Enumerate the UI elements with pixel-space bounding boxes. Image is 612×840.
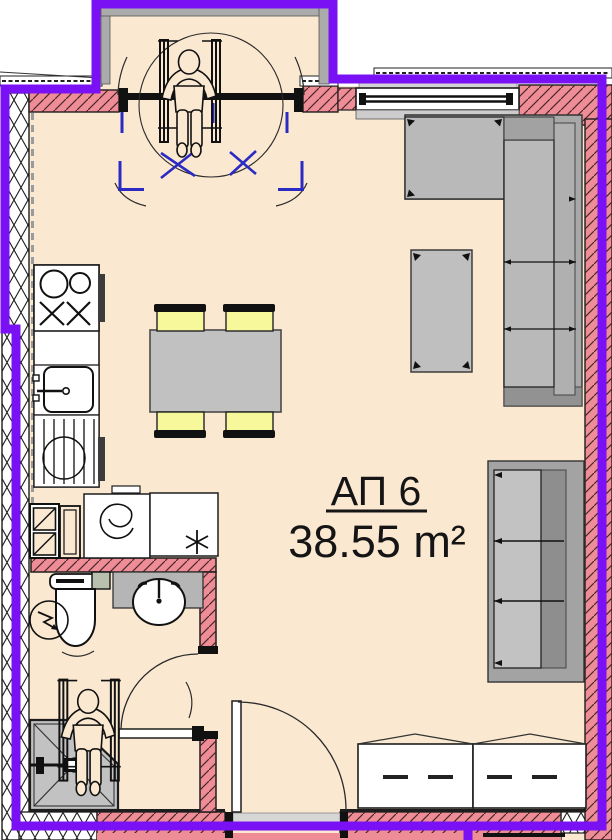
svg-text:АП 6: АП 6 (331, 468, 422, 514)
svg-text:38.55 m²: 38.55 m² (288, 516, 466, 567)
